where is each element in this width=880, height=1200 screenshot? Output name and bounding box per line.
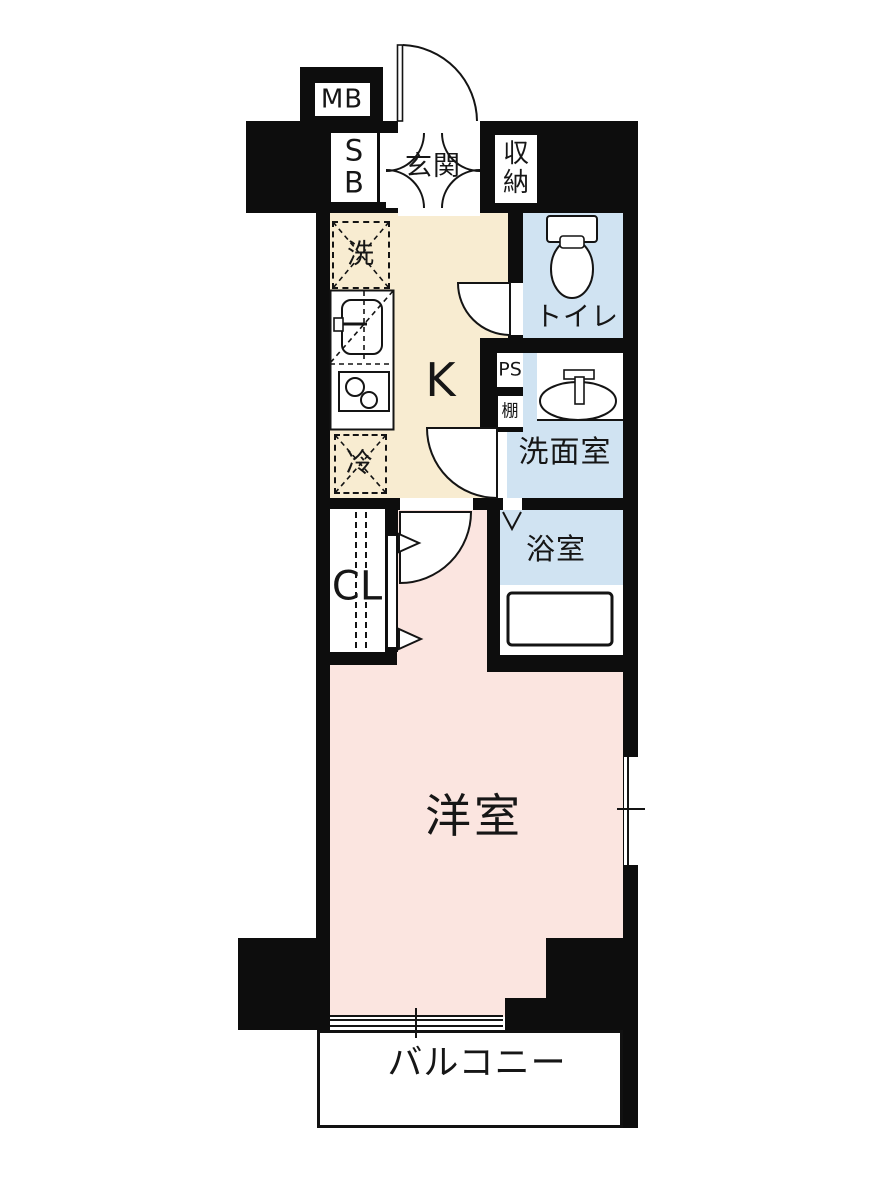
- bathtub: [508, 593, 612, 645]
- washer-label: 洗: [347, 240, 375, 270]
- shoe-box-label: SB: [337, 135, 370, 200]
- toilet-label: トイレ: [535, 303, 619, 333]
- pipe-space-label: PS: [498, 359, 522, 380]
- storage-label: 収納: [501, 140, 531, 198]
- toilet-door: [458, 283, 510, 335]
- fridge-label: 冷: [346, 449, 374, 479]
- entrance-label: 玄関: [405, 152, 461, 182]
- kitchen-faucet: [334, 318, 343, 331]
- bedroom-window: [617, 757, 645, 865]
- entrance-door: [398, 45, 478, 121]
- sliding-window-lines: [330, 1008, 503, 1038]
- washroom-label: 洗面室: [519, 436, 612, 470]
- meter-box-label: MB: [321, 85, 363, 114]
- floor-plan: MB SB 玄関 収納 洗 K トイレ PS 棚 洗面室 冷 CL 浴室 洋室 …: [0, 0, 880, 1200]
- closet-door-mark-bottom: [399, 629, 421, 649]
- balcony-label: バルコニー: [387, 1044, 566, 1083]
- toilet-fixture: [547, 216, 597, 298]
- bathroom-label: 浴室: [526, 533, 586, 565]
- kitchen-counter: [330, 291, 394, 430]
- bedroom-label: 洋室: [425, 791, 523, 843]
- washroom-door: [427, 428, 497, 498]
- washbasin: [537, 370, 623, 420]
- bathroom-door-mark: [503, 512, 521, 529]
- closet-label: CL: [332, 565, 382, 610]
- kitchen-label: K: [425, 355, 456, 407]
- shelf-label: 棚: [502, 402, 519, 421]
